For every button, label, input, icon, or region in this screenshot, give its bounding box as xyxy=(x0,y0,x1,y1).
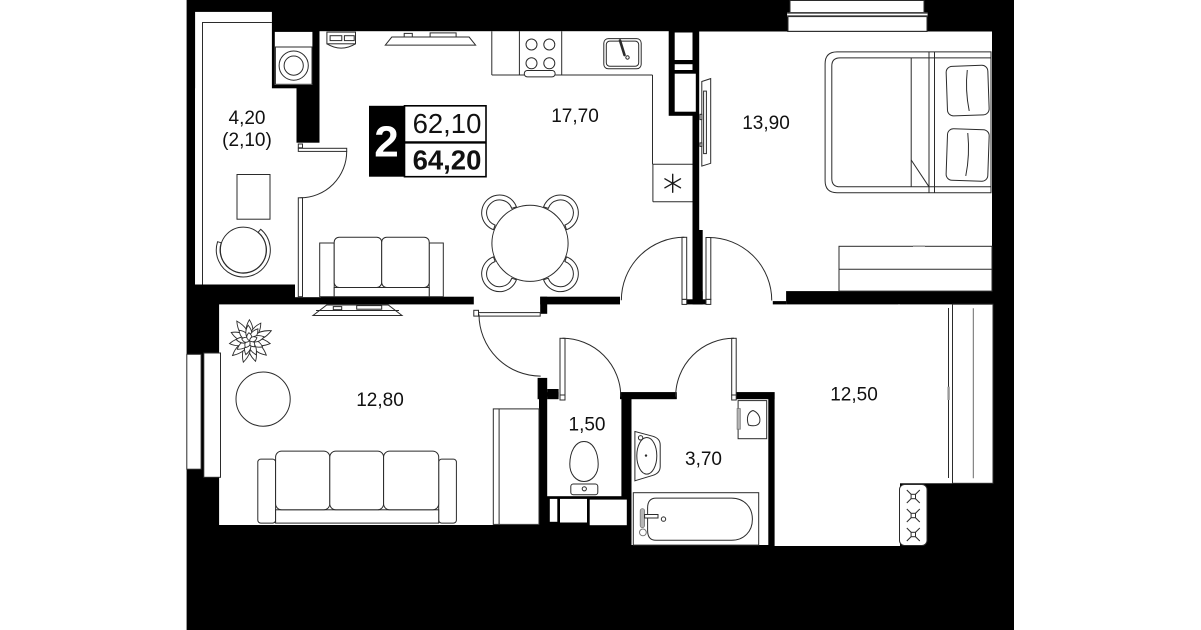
svg-text:4,20: 4,20 xyxy=(229,108,266,129)
svg-text:2: 2 xyxy=(374,118,398,167)
svg-text:12,50: 12,50 xyxy=(830,385,878,406)
svg-text:3,70: 3,70 xyxy=(685,449,722,470)
svg-text:1,50: 1,50 xyxy=(569,415,606,436)
svg-text:13,90: 13,90 xyxy=(742,113,790,134)
svg-text:64,20: 64,20 xyxy=(413,145,482,176)
svg-text:12,80: 12,80 xyxy=(356,390,404,411)
svg-text:(2,10): (2,10) xyxy=(222,130,272,151)
svg-text:62,10: 62,10 xyxy=(413,108,482,139)
svg-text:17,70: 17,70 xyxy=(551,106,599,127)
